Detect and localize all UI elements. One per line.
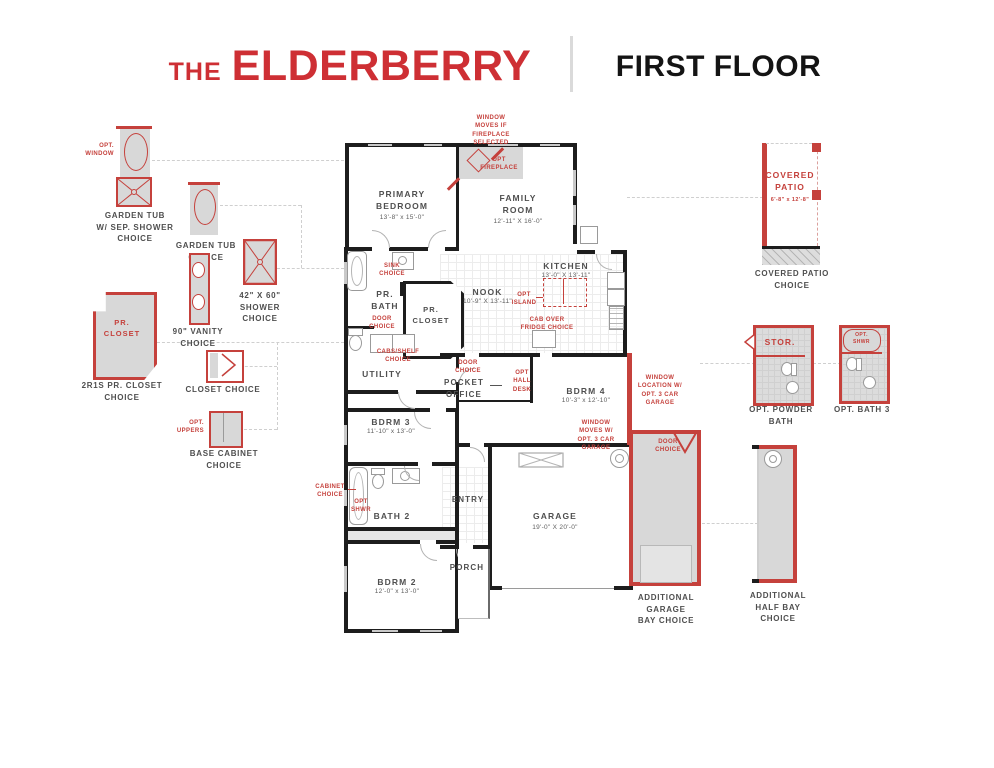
room-label-entry: ENTRY bbox=[446, 494, 490, 506]
option-wall bbox=[841, 352, 882, 354]
option-label-shower: 42" X 60" SHOWER CHOICE bbox=[226, 290, 294, 325]
cabinet-choice-pointer bbox=[348, 489, 356, 490]
option-label-garage-bay: ADDITIONAL GARAGE BAY CHOICE bbox=[624, 592, 708, 627]
callout-opt-shwr: OPT SHWR bbox=[350, 498, 372, 515]
callout-cab-over-fridge: CAB OVER FRIDGE CHOICE bbox=[516, 316, 578, 333]
opt-island-pointer bbox=[536, 297, 543, 298]
room-dims-bdrm2: 12'-0" x 13'-0" bbox=[366, 588, 428, 595]
water-heater-core bbox=[615, 454, 624, 463]
garage-storage-icon bbox=[518, 452, 564, 468]
door-opening bbox=[540, 353, 552, 357]
patio-edge bbox=[766, 143, 812, 144]
wall bbox=[344, 527, 457, 531]
sink-icon bbox=[863, 376, 876, 389]
powder-bath-door-icon bbox=[744, 333, 756, 351]
door-opening bbox=[430, 408, 446, 412]
window-marker bbox=[540, 144, 560, 146]
connector-line bbox=[152, 160, 344, 161]
wall bbox=[752, 445, 759, 449]
option-wall bbox=[756, 355, 805, 357]
toilet-tank bbox=[791, 363, 797, 376]
connector-line bbox=[277, 342, 278, 430]
callout-window-moves-fireplace: WINDOW MOVES IF FIREPLACE SELECTED bbox=[465, 114, 517, 148]
room-label-bdrm2: BDRM 2 bbox=[368, 576, 426, 588]
door-opening bbox=[465, 353, 479, 357]
plan-title-name: ELDERBERRY bbox=[232, 42, 532, 90]
wall bbox=[345, 143, 349, 251]
window-marker bbox=[368, 144, 392, 146]
connector-line bbox=[627, 197, 763, 198]
base-cabinet-icon bbox=[209, 411, 243, 448]
pocket-office-pointer bbox=[490, 385, 502, 386]
garden-tub-icon bbox=[124, 133, 148, 171]
door-arc bbox=[420, 544, 437, 561]
door-arc bbox=[398, 392, 415, 409]
option-wall bbox=[116, 126, 152, 129]
cabinet-divider bbox=[223, 413, 224, 442]
connector-line bbox=[301, 205, 302, 268]
room-label-utility: UTILITY bbox=[356, 368, 408, 380]
option-label-closet: CLOSET CHOICE bbox=[178, 384, 268, 396]
tub-basin bbox=[351, 256, 363, 286]
plumbing-wall-fill bbox=[344, 531, 457, 540]
plan-title: THEELDERBERRY bbox=[150, 42, 550, 91]
callout-opt-island: OPT ISLAND bbox=[510, 291, 538, 308]
room-label-bdrm3: BDRM 3 bbox=[362, 416, 420, 428]
floor-title: FIRST FLOOR bbox=[596, 50, 841, 84]
room-label-kitchen: KITCHEN bbox=[535, 260, 597, 272]
window-marker bbox=[344, 566, 347, 592]
callout-window-moves-garage: WINDOW MOVES W/ OPT. 3 CAR GARAGE bbox=[570, 419, 622, 453]
water-heater-core bbox=[769, 455, 777, 463]
connector-line bbox=[220, 205, 301, 206]
room-dims-family-room: 12'-11" X 16'-0" bbox=[485, 218, 551, 225]
opt-island-outline bbox=[543, 278, 587, 307]
wall bbox=[455, 408, 459, 548]
callout-cabinet-choice: CABINET CHOICE bbox=[310, 483, 350, 500]
option-label-powder-bath: OPT. POWDER BATH bbox=[745, 404, 817, 427]
callout-opt-fireplace: OPT FIREPLACE bbox=[478, 156, 520, 173]
option-label-base-cabinet: BASE CABINET CHOICE bbox=[176, 448, 272, 471]
separate-shower-icon bbox=[116, 177, 152, 207]
connector-line bbox=[239, 429, 277, 430]
opt-uppers-callout: OPT. UPPERS bbox=[176, 419, 204, 436]
option-label-pr-closet: 2R1S PR. CLOSET CHOICE bbox=[72, 380, 172, 403]
window-marker bbox=[344, 425, 347, 445]
closet-door-icon bbox=[221, 352, 237, 378]
room-label-pocket-office: POCKET OFFICE bbox=[438, 377, 490, 400]
garden-tub-icon bbox=[194, 189, 216, 225]
door-arc bbox=[470, 447, 485, 462]
patio-post bbox=[812, 143, 821, 152]
room-label-nook: NOOK bbox=[460, 286, 515, 298]
room-label-family-room: FAMILY ROOM bbox=[488, 192, 548, 217]
vanity-sink-icon bbox=[192, 294, 205, 310]
wall bbox=[344, 540, 457, 544]
callout-opt-hall-desk: OPT HALL DESK bbox=[508, 369, 536, 394]
room-dims-garage: 19'-0" X 20'-0" bbox=[522, 524, 588, 531]
wall bbox=[577, 250, 595, 254]
window-marker bbox=[573, 205, 576, 225]
room-label-bdrm4: BDRM 4 bbox=[556, 385, 616, 397]
connector-line bbox=[702, 523, 758, 524]
callout-cabs-shelf-choice: CABS/SHELF CHOICE bbox=[372, 348, 424, 365]
door-swing-icon bbox=[672, 431, 698, 455]
header-divider bbox=[570, 36, 573, 92]
option-label-covered-patio: COVERED PATIO CHOICE bbox=[748, 268, 836, 291]
toilet-icon bbox=[372, 474, 384, 489]
callout-door-choice: DOOR CHOICE bbox=[366, 315, 398, 332]
covered-patio-text: COVERED PATIO bbox=[762, 170, 818, 194]
floor-plan-canvas: THEELDERBERRY FIRST FLOOR OPT. WINDOW GA… bbox=[0, 0, 994, 768]
callout-sink-choice: SINK CHOICE bbox=[377, 262, 407, 279]
wall bbox=[456, 145, 459, 247]
oven-icon bbox=[607, 272, 625, 289]
window-marker bbox=[420, 630, 442, 632]
room-label-pr-bath: PR. BATH bbox=[366, 288, 404, 313]
toilet-tank bbox=[856, 358, 862, 371]
window-marker bbox=[372, 630, 398, 632]
covered-patio-dims: 6'-8" x 12'-8" bbox=[762, 197, 818, 205]
connector-line bbox=[700, 363, 755, 364]
room-label-bath2: BATH 2 bbox=[370, 510, 414, 522]
callout-door-choice-office: DOOR CHOICE bbox=[452, 359, 484, 376]
patio-post bbox=[580, 226, 598, 244]
garage-door-line bbox=[502, 588, 614, 589]
option-label-vanity: 90" VANITY CHOICE bbox=[162, 326, 234, 349]
sink-icon bbox=[786, 381, 799, 394]
callout-window-location-garage: WINDOW LOCATION W/ OPT. 3 CAR GARAGE bbox=[632, 374, 688, 408]
room-label-pr-closet: PR. CLOSET bbox=[408, 305, 454, 327]
bath3-opt-shwr-text: OPT. SHWR bbox=[845, 332, 878, 346]
room-label-primary-bedroom: PRIMARY BEDROOM bbox=[363, 188, 441, 213]
window-marker bbox=[573, 170, 576, 196]
room-dims-kitchen: 13'-0" X 13'-11" bbox=[533, 272, 599, 279]
toilet-icon bbox=[349, 335, 362, 351]
wall bbox=[752, 579, 759, 583]
window-marker bbox=[424, 144, 442, 146]
shower-42x60-icon bbox=[243, 239, 277, 285]
porch-outline bbox=[458, 549, 490, 619]
option-label-bath3: OPT. BATH 3 bbox=[830, 404, 894, 416]
pantry-shelves bbox=[609, 306, 624, 330]
wall bbox=[344, 462, 457, 466]
connector-line bbox=[277, 268, 344, 269]
room-label-porch: PORCH bbox=[444, 562, 490, 574]
room-dims-primary-bedroom: 13'-8" x 15'-0" bbox=[363, 214, 441, 221]
option-label-half-bay: ADDITIONAL HALF BAY CHOICE bbox=[740, 590, 816, 625]
pr-closet-option-text: PR. CLOSET bbox=[97, 318, 147, 339]
door-opening bbox=[418, 462, 432, 466]
microwave-icon bbox=[607, 289, 625, 306]
opt-window-callout: OPT. WINDOW bbox=[82, 142, 114, 159]
room-dims-bdrm4: 10'-3" x 12'-10" bbox=[554, 397, 618, 404]
option-label-garden-tub-sep-shower: GARDEN TUB W/ SEP. SHOWER CHOICE bbox=[90, 210, 180, 245]
wall bbox=[458, 400, 532, 402]
connector-line bbox=[240, 366, 277, 367]
room-dims-bdrm3: 11'-10" x 13'-0" bbox=[360, 428, 422, 435]
plan-title-prefix: THE bbox=[169, 58, 222, 86]
garage-bay-door bbox=[640, 545, 692, 583]
vanity-sink-icon bbox=[192, 262, 205, 278]
door-arc bbox=[372, 230, 390, 248]
powder-bath-stor-text: STOR. bbox=[757, 337, 803, 349]
room-label-garage: GARAGE bbox=[524, 510, 586, 522]
island-divider bbox=[563, 279, 564, 304]
patio-step-hatch bbox=[762, 249, 820, 265]
door-arc bbox=[428, 230, 446, 248]
closet-panel bbox=[210, 353, 218, 378]
